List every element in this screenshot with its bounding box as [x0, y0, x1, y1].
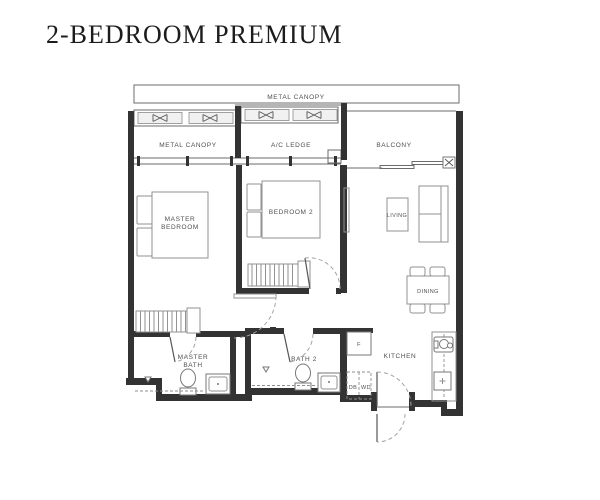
master-wardrobe [136, 308, 200, 333]
room-living: LIVING [344, 186, 448, 242]
room-master-bedroom: MASTER BEDROOM [136, 192, 208, 333]
walls [126, 103, 463, 416]
room-dining: DINING [407, 267, 449, 313]
bedroom2-label: BEDROOM 2 [269, 209, 313, 216]
kitchen-sink [434, 337, 453, 352]
living-label: LIVING [387, 213, 407, 219]
dining-label: DINING [417, 289, 439, 295]
floor-plan: METAL CANOPY [0, 0, 600, 500]
master-bedroom-label-2: BEDROOM [161, 224, 199, 231]
master-bed-pillow [137, 228, 152, 256]
balcony-label: BALCONY [376, 142, 411, 149]
room-ac-ledge: A/C LEDGE [271, 142, 311, 149]
vanity-sink [206, 374, 230, 394]
toilet [295, 364, 311, 390]
master-bedroom-label-1: MASTER [165, 216, 196, 223]
room-master-bath: MASTER BATH [135, 354, 230, 395]
louver-strip-ledge [235, 105, 341, 123]
dining-chair [430, 267, 445, 276]
dining-chair [430, 304, 445, 313]
master-bed-pillow [137, 196, 152, 224]
db-wd-box: DB WD [347, 372, 371, 399]
master-bath-label-1: MASTER [178, 354, 209, 361]
sofa [419, 186, 448, 242]
banner-label: METAL CANOPY [267, 94, 324, 101]
db-label: DB [349, 385, 357, 391]
entrance-door [377, 372, 411, 442]
bedroom2-bed-pillow [247, 212, 261, 237]
louver-strip-canopy [134, 110, 236, 126]
balcony-sliding-door [341, 111, 456, 169]
master-bath-label-2: BATH [183, 362, 202, 369]
wd-label: WD [361, 385, 371, 391]
page: 2-BEDROOM PREMIUM METAL CANOPY [0, 0, 600, 500]
rwp-marker [443, 157, 455, 168]
dining-chair [410, 267, 425, 276]
ac-ledge-label: A/C LEDGE [271, 142, 311, 149]
kitchen-label: KITCHEN [384, 353, 417, 360]
bedroom2-bed-pillow [247, 184, 261, 210]
fridge-label: F [357, 342, 361, 348]
vanity-sink [318, 373, 340, 392]
bath2-label: BATH 2 [291, 356, 317, 363]
dining-chair [410, 304, 425, 313]
canopy-banner: METAL CANOPY [134, 85, 459, 103]
bedroom2-wardrobe [248, 261, 310, 287]
room-metal-canopy: METAL CANOPY [159, 142, 216, 149]
metal-canopy-label: METAL CANOPY [159, 142, 216, 149]
room-balcony: BALCONY [376, 142, 411, 149]
room-bath-2: BATH 2 [252, 356, 340, 392]
cooktop [434, 372, 451, 390]
kitchen-counter [432, 332, 456, 401]
room-bedroom-2: BEDROOM 2 [247, 181, 320, 287]
shower-drain [263, 367, 269, 372]
room-kitchen: F DB WD KITC [347, 332, 456, 401]
